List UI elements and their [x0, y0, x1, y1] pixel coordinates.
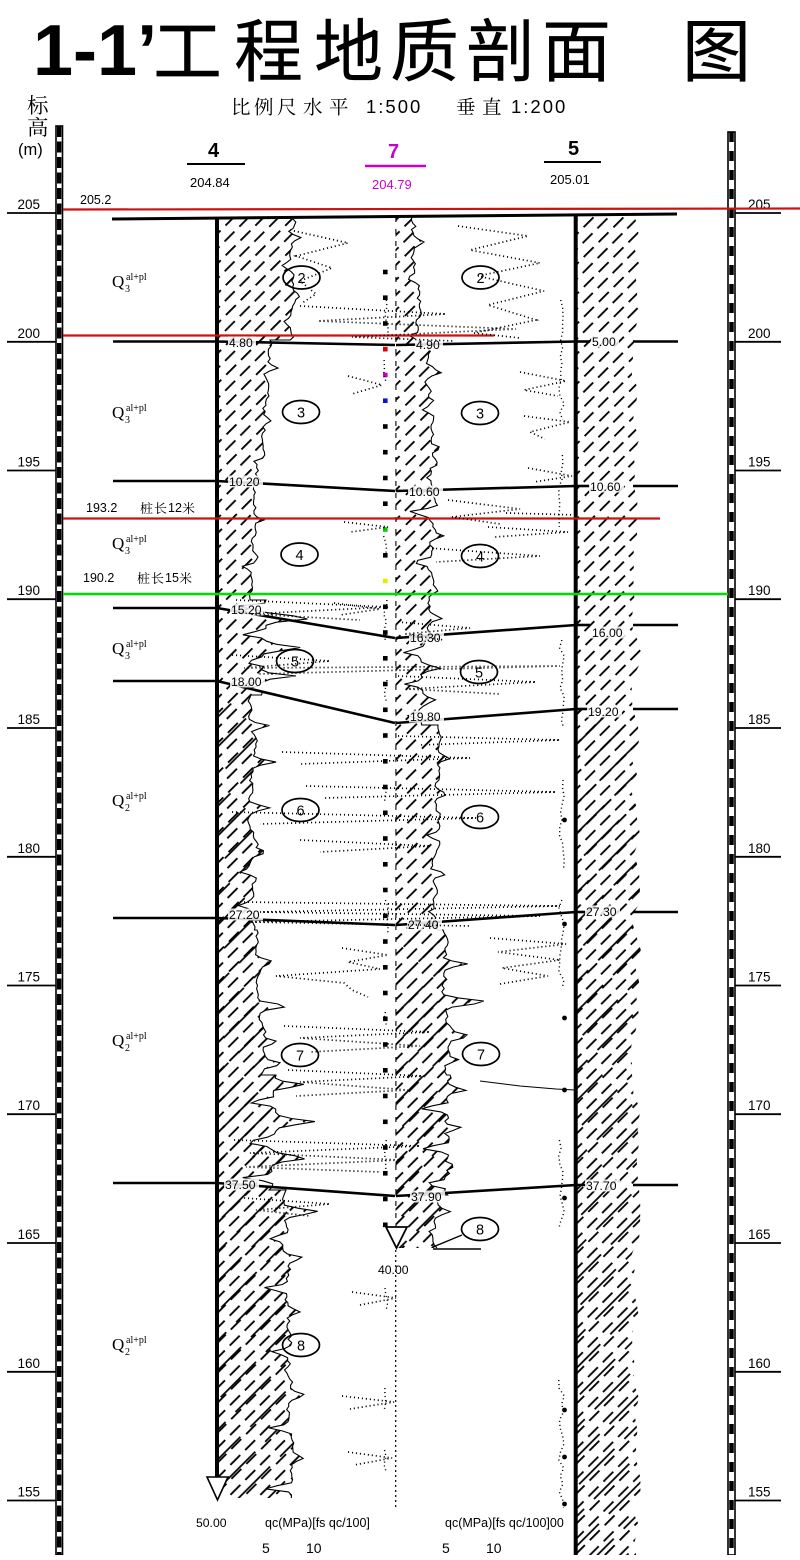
svg-text:19.80: 19.80	[410, 710, 441, 724]
svg-text:40.00: 40.00	[378, 1263, 409, 1277]
svg-text:qc(MPa)[fs qc/100]00: qc(MPa)[fs qc/100]00	[445, 1516, 564, 1530]
svg-text:175: 175	[17, 970, 40, 985]
svg-text:al+pl: al+pl	[126, 639, 147, 650]
svg-text:4.80: 4.80	[229, 336, 253, 350]
svg-text:18.00: 18.00	[231, 675, 262, 689]
svg-text:175: 175	[748, 970, 771, 985]
svg-text:195: 195	[17, 455, 40, 470]
svg-text:6: 6	[296, 804, 304, 820]
svg-text:200: 200	[748, 326, 771, 341]
svg-text:190: 190	[17, 583, 40, 598]
svg-text:155: 155	[17, 1485, 40, 1500]
svg-text:1:500: 1:500	[366, 96, 422, 117]
svg-text:10: 10	[306, 1540, 322, 1555]
svg-text:170: 170	[17, 1098, 40, 1113]
svg-text:37.50: 37.50	[225, 1178, 256, 1192]
svg-text:205: 205	[17, 197, 40, 212]
svg-text:1-1’: 1-1’	[33, 11, 157, 91]
svg-text:2: 2	[125, 1347, 130, 1358]
svg-text:4: 4	[208, 140, 220, 162]
svg-text:155: 155	[748, 1485, 771, 1500]
svg-text:205.01: 205.01	[550, 172, 590, 187]
svg-text:170: 170	[748, 1098, 771, 1113]
svg-text:190.2: 190.2	[83, 571, 114, 585]
svg-text:3: 3	[297, 406, 305, 422]
svg-text:5: 5	[568, 138, 579, 160]
svg-text:2: 2	[476, 271, 484, 287]
svg-text:3: 3	[476, 407, 484, 423]
svg-text:160: 160	[17, 1356, 40, 1371]
svg-text:10: 10	[486, 1540, 502, 1555]
svg-text:(m): (m)	[18, 141, 43, 159]
svg-text:190: 190	[748, 583, 771, 598]
svg-text:165: 165	[17, 1227, 40, 1242]
svg-text:165: 165	[748, 1227, 771, 1242]
svg-text:10.20: 10.20	[229, 475, 260, 489]
svg-text:3: 3	[125, 651, 130, 662]
svg-text:3: 3	[125, 284, 130, 295]
svg-text:5.00: 5.00	[592, 335, 616, 349]
svg-text:160: 160	[748, 1356, 771, 1371]
svg-text:3: 3	[125, 546, 130, 557]
svg-text:200: 200	[17, 326, 40, 341]
svg-text:4: 4	[295, 548, 303, 564]
svg-text:5: 5	[262, 1540, 270, 1555]
svg-text:al+pl: al+pl	[126, 403, 147, 414]
svg-text:7: 7	[388, 141, 399, 163]
svg-text:10.60: 10.60	[590, 480, 621, 494]
svg-text:185: 185	[17, 712, 40, 727]
svg-text:195: 195	[748, 455, 771, 470]
svg-text:180: 180	[748, 841, 771, 856]
svg-text:7: 7	[477, 1048, 485, 1064]
svg-text:37.70: 37.70	[586, 1179, 617, 1193]
svg-text:Q: Q	[112, 534, 124, 553]
svg-text:8: 8	[297, 1339, 305, 1355]
svg-text:7: 7	[296, 1049, 304, 1065]
svg-text:3: 3	[125, 415, 130, 426]
svg-text:1:200: 1:200	[511, 96, 567, 117]
svg-text:Q: Q	[112, 272, 124, 291]
svg-text:204.79: 204.79	[372, 177, 412, 192]
svg-text:Q: Q	[112, 1335, 124, 1354]
svg-text:27.30: 27.30	[586, 905, 617, 919]
svg-text:Q: Q	[112, 403, 124, 422]
svg-text:37.90: 37.90	[411, 1190, 442, 1204]
svg-text:193.2: 193.2	[86, 501, 117, 515]
svg-text:15: 15	[165, 571, 179, 585]
svg-text:Q: Q	[112, 791, 124, 810]
svg-text:al+pl: al+pl	[126, 272, 147, 283]
svg-text:al+pl: al+pl	[126, 1031, 147, 1042]
svg-text:180: 180	[17, 841, 40, 856]
svg-text:5: 5	[442, 1540, 450, 1555]
svg-text:2: 2	[125, 803, 130, 814]
svg-text:qc(MPa)[fs qc/100]: qc(MPa)[fs qc/100]	[265, 1516, 370, 1530]
svg-text:16.00: 16.00	[592, 626, 623, 640]
svg-text:12: 12	[168, 501, 182, 515]
svg-text:Q: Q	[112, 639, 124, 658]
svg-text:2: 2	[125, 1043, 130, 1054]
svg-text:al+pl: al+pl	[126, 791, 147, 802]
svg-text:50.00: 50.00	[196, 1516, 227, 1530]
svg-text:al+pl: al+pl	[126, 1335, 147, 1346]
svg-text:6: 6	[476, 811, 484, 827]
svg-text:al+pl: al+pl	[126, 534, 147, 545]
svg-text:205: 205	[748, 197, 771, 212]
svg-text:15.20: 15.20	[231, 603, 262, 617]
svg-text:185: 185	[748, 712, 771, 727]
svg-text:19.20: 19.20	[588, 705, 619, 719]
svg-text:204.84: 204.84	[190, 175, 230, 190]
svg-text:Q: Q	[112, 1031, 124, 1050]
svg-text:205.2: 205.2	[80, 193, 111, 207]
svg-text:8: 8	[476, 1223, 484, 1239]
svg-text:27.20: 27.20	[229, 908, 260, 922]
svg-text:10.60: 10.60	[409, 485, 440, 499]
